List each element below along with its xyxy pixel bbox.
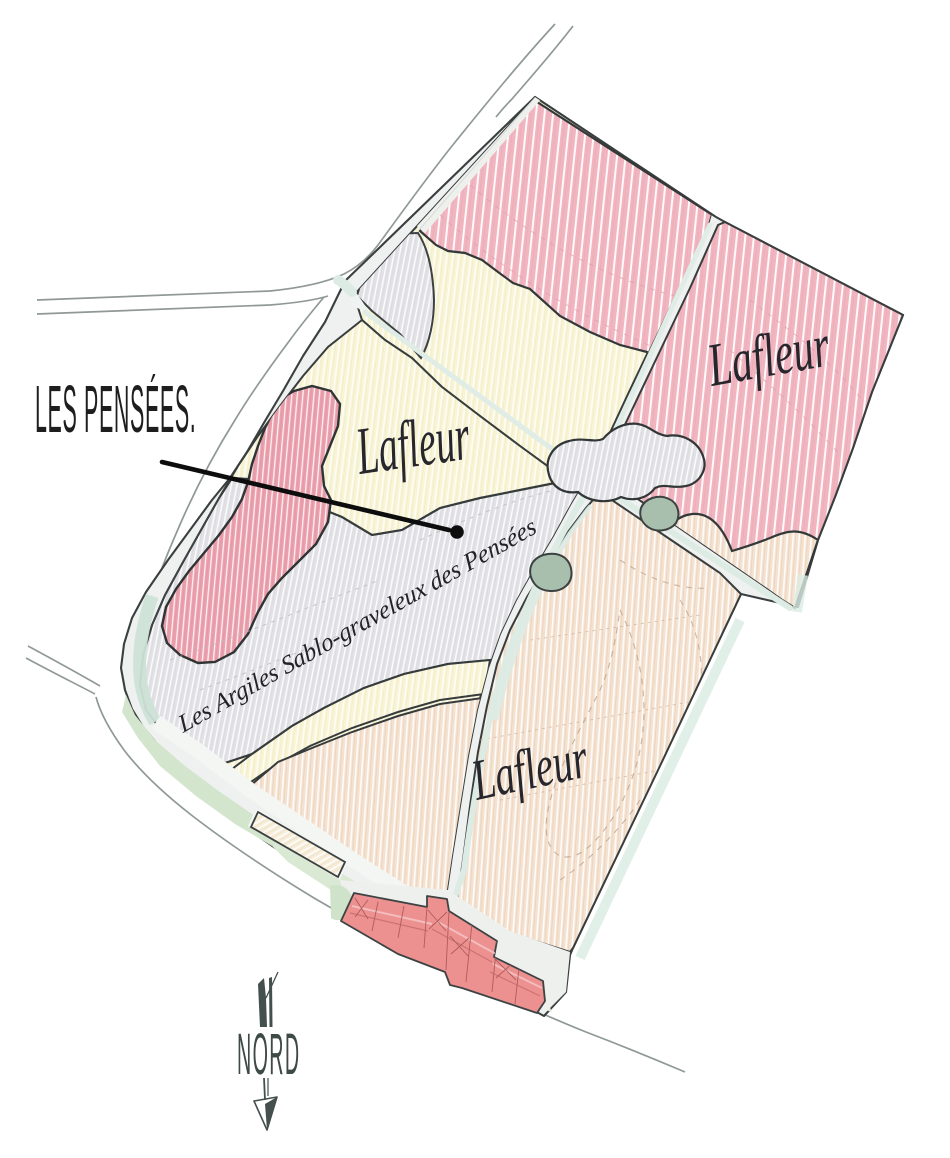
- svg-text:NORD: NORD: [237, 1023, 300, 1087]
- svg-text:LES PENSÉES.: LES PENSÉES.: [35, 371, 196, 446]
- svg-text:Lafleur: Lafleur: [351, 399, 475, 489]
